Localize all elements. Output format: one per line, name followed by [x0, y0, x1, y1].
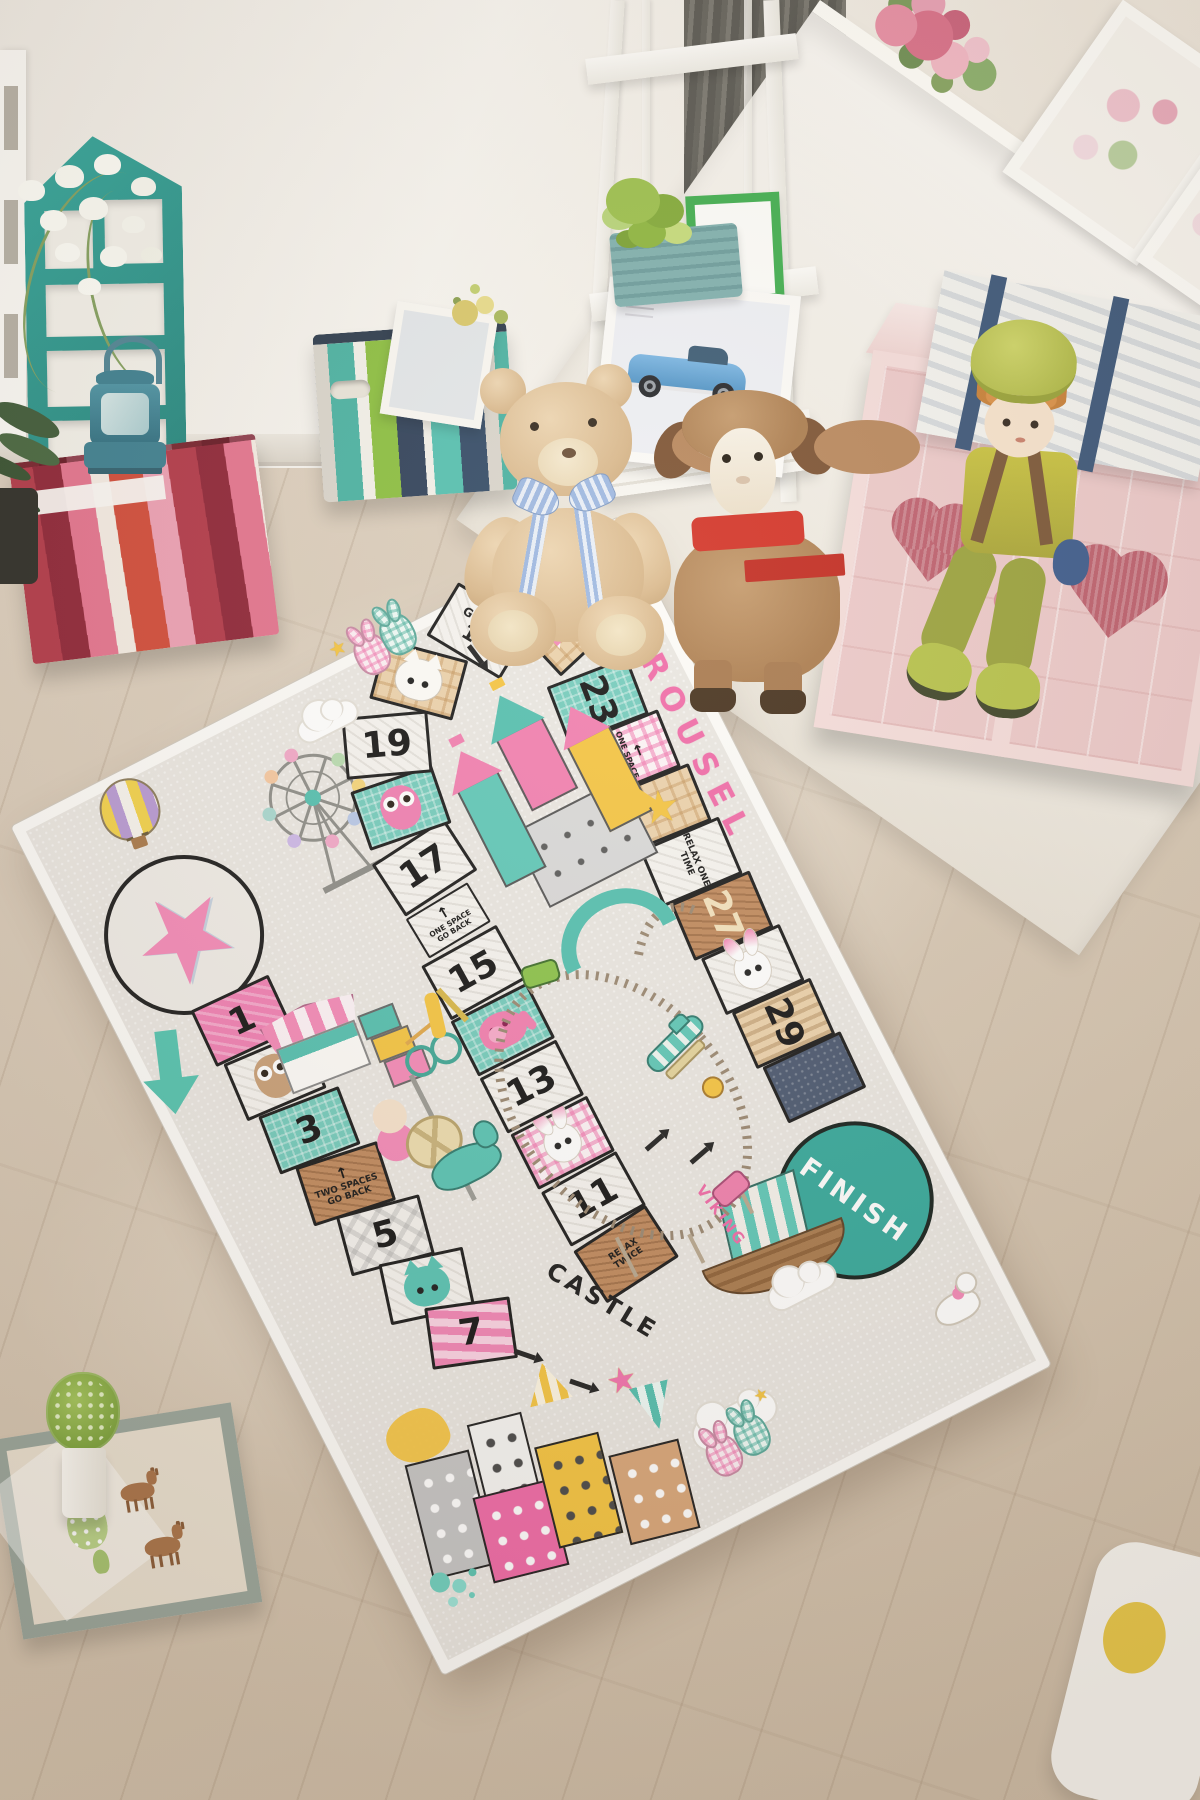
bear-foot-pad — [488, 610, 538, 652]
deer-head — [171, 1524, 184, 1540]
boy-doll-plush — [891, 290, 1159, 716]
llama-hoof — [760, 690, 806, 714]
start-arrow-icon — [137, 1027, 204, 1125]
woven-basket — [609, 223, 743, 308]
deer-legs — [126, 1500, 131, 1512]
kids-room-scene: CAROUSEL ★ — [0, 0, 1200, 1800]
bear-nose — [562, 448, 576, 458]
arrow-shaft — [154, 1029, 182, 1081]
deer-head — [145, 1470, 157, 1485]
pink-star-icon: ★ — [602, 1357, 641, 1403]
llama-hoof — [690, 688, 736, 712]
orchid-pot — [0, 488, 38, 584]
bear-eye — [588, 418, 597, 427]
orchid-flowers-icon — [18, 180, 45, 201]
lantern-body — [90, 384, 160, 446]
hot-air-balloon-icon — [91, 771, 169, 858]
plant-foliage — [46, 1372, 120, 1452]
castle-flag-icon — [489, 677, 506, 691]
castle-flag-icon — [448, 733, 465, 747]
bear-foot — [470, 592, 556, 666]
arrow-head — [143, 1075, 203, 1118]
deer-art-tray — [0, 1402, 262, 1639]
blue-lantern — [80, 336, 168, 478]
potted-topiary-plant — [42, 1372, 126, 1524]
green-plant-icon — [606, 178, 660, 224]
lantern-base — [84, 442, 166, 468]
instruction: ↑ TWO SPACES GO BACK — [309, 1156, 383, 1211]
square-number: 1 — [223, 999, 261, 1042]
llama-face — [710, 428, 776, 516]
white-cat-icon — [391, 654, 446, 705]
doll-boot — [901, 637, 978, 708]
pink-owl-icon — [375, 780, 427, 835]
llama-body — [674, 530, 840, 682]
unicorn-icon — [918, 1269, 991, 1338]
deer-legs — [150, 1556, 155, 1569]
square-number: 7 — [456, 1313, 486, 1352]
bear-eye — [530, 422, 539, 431]
plant-pot — [62, 1448, 106, 1518]
square-number: 5 — [369, 1215, 403, 1256]
deer-icon — [132, 1525, 192, 1569]
bin-handle — [330, 379, 371, 400]
cat-icon — [400, 1262, 453, 1311]
llama-plush — [648, 390, 888, 716]
square-number: 17 — [394, 839, 456, 896]
tower-cone-icon — [521, 1358, 573, 1407]
square-number: 19 — [360, 725, 413, 765]
yellow-flowers-icon — [452, 300, 478, 326]
bear-foot-pad — [596, 614, 646, 656]
path-arrow-icon — [513, 1349, 535, 1361]
window-pane — [4, 86, 18, 150]
doll-mitten — [1051, 538, 1090, 586]
orchid-leaves — [0, 395, 64, 445]
rug-square-7: 7 — [424, 1296, 518, 1369]
rider-girl — [367, 1093, 413, 1139]
